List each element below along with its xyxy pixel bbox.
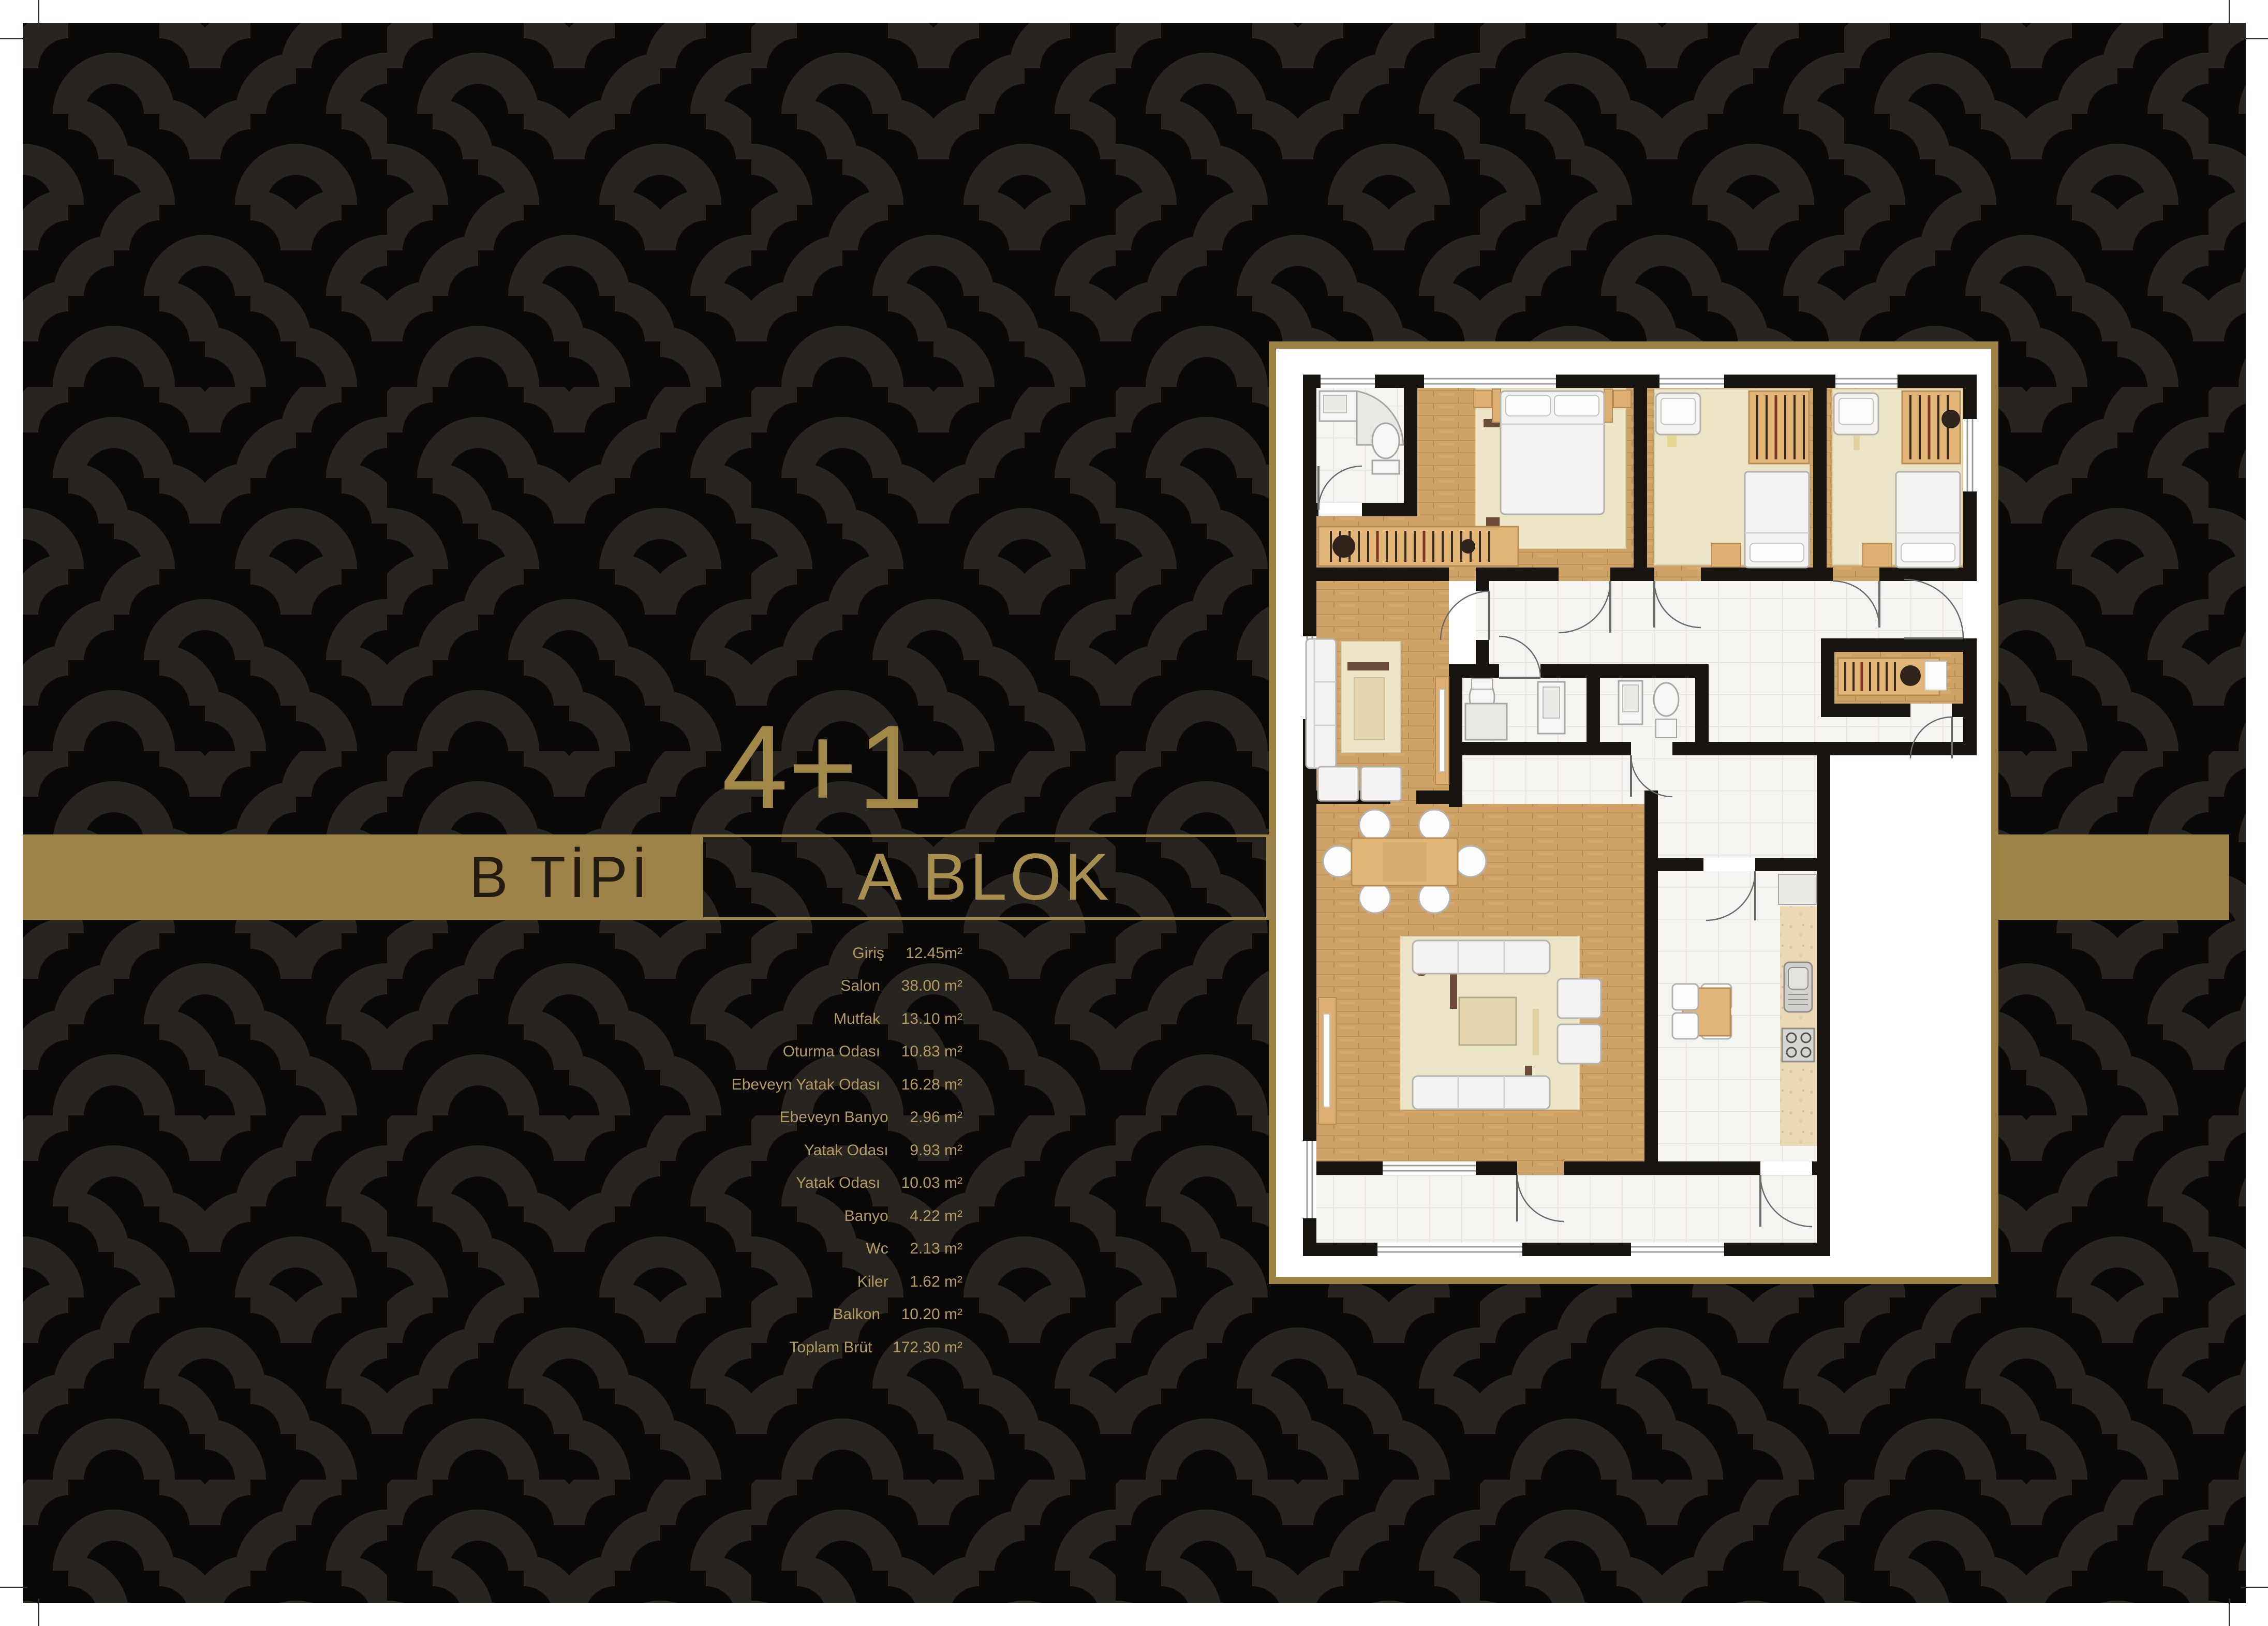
area-row-4: Ebeveyn Yatak Odası16.28 m² [569, 1068, 962, 1101]
area-row-0: Giriş12.45m² [569, 937, 962, 970]
type-band-label: B TİPİ [469, 844, 701, 911]
room-area-value: 38.00 m² [901, 977, 962, 995]
room-label: Wc [569, 1240, 888, 1258]
room-label: Balkon [569, 1306, 880, 1323]
area-row-9: Wc2.13 m² [569, 1233, 962, 1266]
brochure-page: { "page": { "unit_label": "4+1", "type_l… [0, 0, 2268, 1626]
room-area-value: 2.13 m² [910, 1240, 962, 1258]
area-row-7: Yatak Odası10.03 m² [569, 1167, 962, 1200]
room-area-value: 9.93 m² [910, 1142, 962, 1159]
crop-mark [2229, 1599, 2230, 1626]
crop-mark [38, 0, 39, 27]
wardrobe-icon [1318, 527, 1518, 566]
area-row-6: Yatak Odası9.93 m² [569, 1134, 962, 1167]
crop-mark [38, 1599, 39, 1626]
room-balkon [1316, 1175, 1830, 1243]
area-row-1: Salon38.00 m² [569, 970, 962, 1003]
gold-band-right-segment [1998, 834, 2229, 920]
room-area-value: 172.30 m² [893, 1339, 962, 1356]
room-label: Banyo [569, 1207, 888, 1225]
area-row-8: Banyo4.22 m² [569, 1200, 962, 1233]
room-label: Mutfak [569, 1010, 880, 1028]
area-row-10: Kiler1.62 m² [569, 1265, 962, 1299]
room-area-value: 13.10 m² [901, 1010, 962, 1028]
room-area-value: 16.28 m² [901, 1076, 962, 1094]
room-label: Kiler [569, 1273, 888, 1291]
plan-void-area [1830, 755, 1991, 1277]
room-area-value: 4.22 m² [910, 1207, 962, 1225]
room-label: Yatak Odası [569, 1142, 888, 1159]
room-label: Ebeveyn Yatak Odası [569, 1076, 880, 1094]
block-badge-label: A BLOK [857, 839, 1111, 915]
area-row-12: Toplam Brüt172.30 m² [569, 1331, 962, 1364]
area-row-3: Oturma Odası10.83 m² [569, 1036, 962, 1069]
room-area-table: Giriş12.45m²Salon38.00 m²Mutfak13.10 m²O… [569, 937, 962, 1364]
crop-mark [0, 38, 27, 39]
crop-mark [2241, 38, 2268, 39]
floor-plan [1269, 341, 1998, 1284]
area-row-5: Ebeveyn Banyo2.96 m² [569, 1101, 962, 1135]
room-label: Toplam Brüt [569, 1339, 872, 1356]
tv-unit-icon [1318, 997, 1336, 1124]
room-label: Giriş [569, 945, 884, 962]
crop-mark [0, 1587, 27, 1588]
room-label: Yatak Odası [569, 1174, 880, 1192]
room-area-value: 1.62 m² [910, 1273, 962, 1291]
crop-mark [2229, 0, 2230, 27]
room-label: Oturma Odası [569, 1043, 880, 1061]
room-area-value: 2.96 m² [910, 1109, 962, 1126]
block-badge: A BLOK [701, 834, 1269, 920]
area-row-11: Balkon10.20 m² [569, 1299, 962, 1332]
room-area-value: 10.03 m² [901, 1174, 962, 1192]
type-band: B TİPİ [23, 834, 701, 920]
room-area-value: 12.45m² [906, 945, 962, 962]
room-label: Salon [569, 977, 880, 995]
area-row-2: Mutfak13.10 m² [569, 1003, 962, 1036]
kiler-furniture [1838, 658, 1947, 695]
rug-oturma [1341, 642, 1401, 753]
room-label: Ebeveyn Banyo [569, 1109, 888, 1126]
room-area-value: 10.83 m² [901, 1043, 962, 1061]
room-area-value: 10.20 m² [901, 1306, 962, 1323]
toilet-icon [1372, 423, 1399, 474]
unit-type-title: 4+1 [714, 708, 931, 827]
crop-mark [2241, 1587, 2268, 1588]
